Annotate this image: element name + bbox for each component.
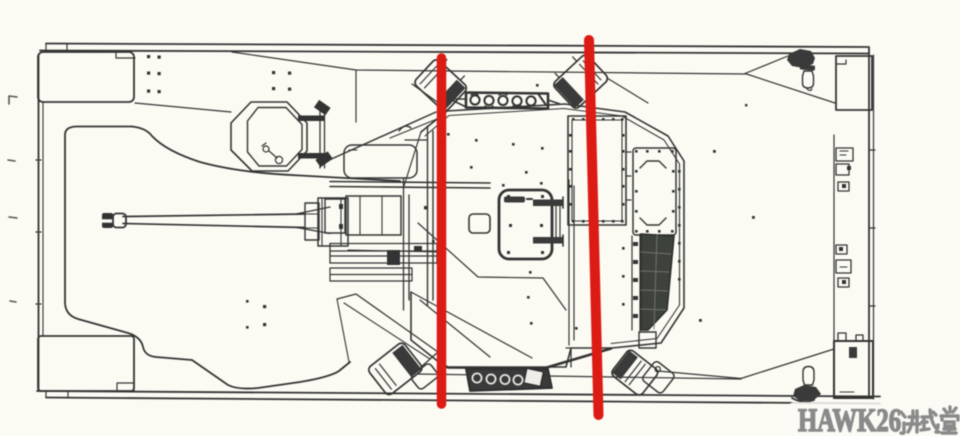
svg-text:HAWK26: HAWK26 <box>798 403 901 436</box>
